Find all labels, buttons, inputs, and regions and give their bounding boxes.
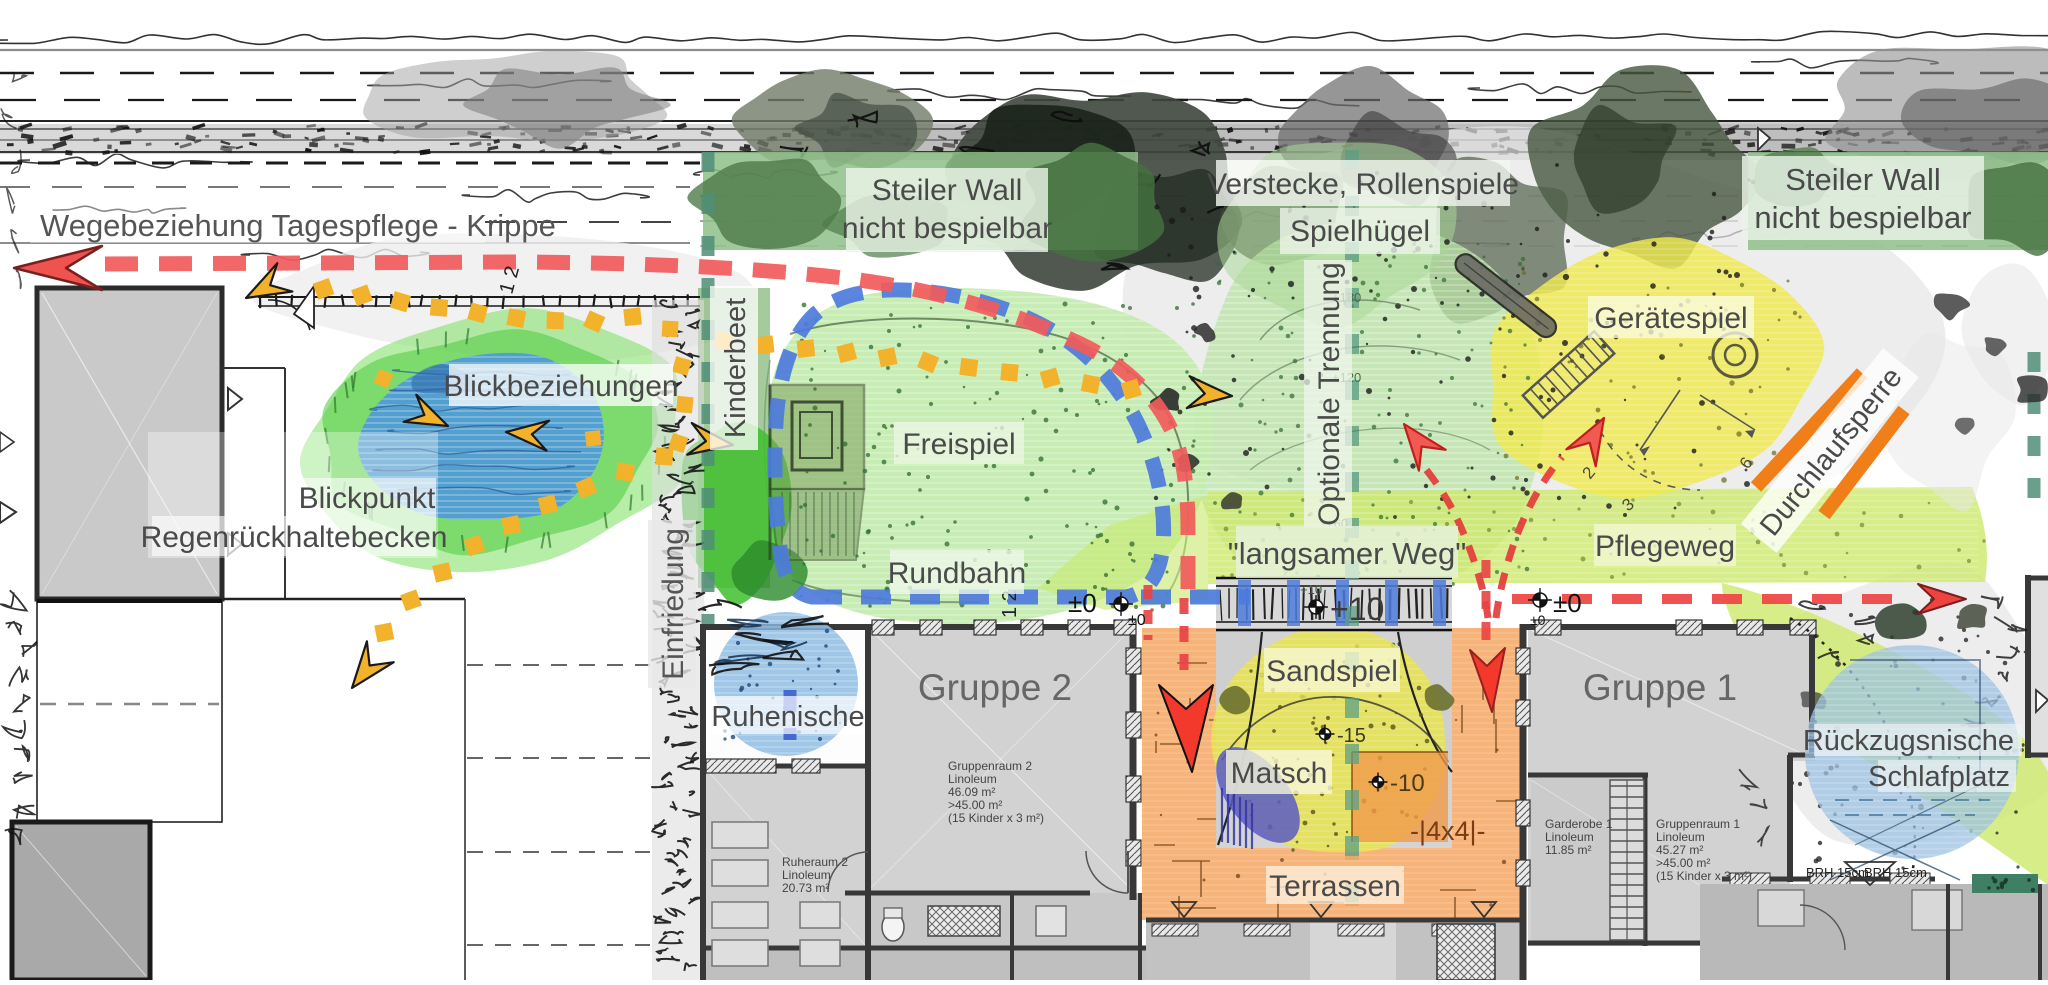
svg-text:Optionale Trennung: Optionale Trennung bbox=[1313, 262, 1346, 526]
svg-text:Freispiel: Freispiel bbox=[902, 428, 1015, 461]
svg-text:Steiler Wall: Steiler Wall bbox=[1785, 162, 1941, 197]
svg-text:Schlafplatz: Schlafplatz bbox=[1868, 761, 2010, 793]
svg-text:nicht bespielbar: nicht bespielbar bbox=[842, 212, 1052, 245]
svg-text:Steiler Wall: Steiler Wall bbox=[872, 174, 1023, 207]
svg-text:1 2: 1 2 bbox=[999, 590, 1021, 618]
svg-text:Gerätespiel: Gerätespiel bbox=[1594, 302, 1747, 335]
svg-text:Blickpunkt: Blickpunkt bbox=[299, 482, 436, 515]
svg-text:Verstecke, Rollenspiele: Verstecke, Rollenspiele bbox=[1207, 168, 1519, 201]
svg-text:±0: ±0 bbox=[1553, 588, 1582, 618]
svg-text:Pflegeweg: Pflegeweg bbox=[1595, 530, 1735, 563]
svg-text:Blickbeziehungen: Blickbeziehungen bbox=[443, 370, 678, 403]
svg-text:Regenrückhaltebecken: Regenrückhaltebecken bbox=[141, 521, 448, 554]
svg-text:Spielhügel: Spielhügel bbox=[1290, 215, 1430, 248]
svg-text:-10: -10 bbox=[1390, 770, 1425, 797]
svg-text:Sandspiel: Sandspiel bbox=[1266, 655, 1398, 688]
svg-text:Gruppe 2: Gruppe 2 bbox=[918, 667, 1072, 708]
svg-text:Einfriedung: Einfriedung bbox=[657, 528, 690, 680]
svg-text:"langsamer Weg": "langsamer Weg" bbox=[1228, 536, 1467, 571]
svg-text:BRH 15cm: BRH 15cm bbox=[1864, 865, 1927, 880]
svg-text:Kinderbeet: Kinderbeet bbox=[720, 298, 752, 438]
svg-text:Matsch: Matsch bbox=[1231, 757, 1328, 790]
svg-text:BRH 15cm: BRH 15cm bbox=[1806, 865, 1869, 880]
svg-text:±0: ±0 bbox=[1530, 612, 1546, 628]
svg-text:±0: ±0 bbox=[1068, 588, 1097, 618]
svg-text:±0: ±0 bbox=[1128, 612, 1146, 629]
svg-text:+10: +10 bbox=[1330, 591, 1384, 627]
svg-text:-15: -15 bbox=[1337, 725, 1366, 747]
svg-text:+10: +10 bbox=[1300, 582, 1322, 597]
svg-text:nicht bespielbar: nicht bespielbar bbox=[1754, 200, 1971, 235]
svg-text:Rückzugsnische: Rückzugsnische bbox=[1803, 725, 2014, 757]
svg-text:Terrassen: Terrassen bbox=[1269, 870, 1401, 903]
svg-text:-|4x4|-: -|4x4|- bbox=[1410, 816, 1486, 846]
svg-text:Wegebeziehung Tagespflege - Kr: Wegebeziehung Tagespflege - Krippe bbox=[40, 208, 556, 243]
svg-text:Ruhenische: Ruhenische bbox=[711, 701, 864, 733]
svg-text:Gruppe 1: Gruppe 1 bbox=[1583, 667, 1737, 708]
svg-text:Rundbahn: Rundbahn bbox=[888, 557, 1026, 590]
